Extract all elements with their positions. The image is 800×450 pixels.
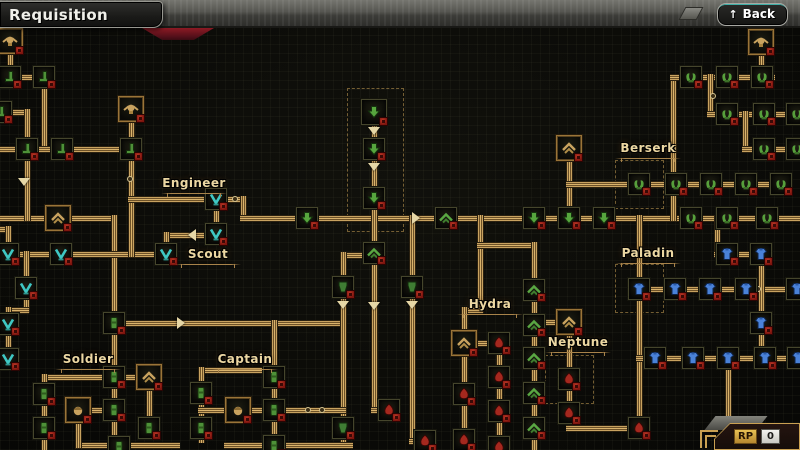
locked-badge <box>204 396 213 405</box>
path-arrow-icon <box>18 178 30 186</box>
locked-badge <box>537 221 546 230</box>
path-arrow-icon <box>368 127 380 135</box>
locked-badge <box>346 431 355 440</box>
path-segment <box>128 155 135 257</box>
locked-badge <box>749 187 758 196</box>
locked-badge <box>572 221 581 230</box>
skill-node-flame[interactable] <box>414 430 436 450</box>
skill-node-pack[interactable] <box>190 417 212 439</box>
skill-node-armorB[interactable] <box>699 278 721 300</box>
path-arrow-icon <box>406 301 418 309</box>
path-arrow-icon <box>412 212 420 224</box>
label-underline-decor <box>457 312 523 318</box>
locked-badge <box>730 221 739 230</box>
rp-value: 0 <box>761 429 780 444</box>
skill-node-armorB[interactable] <box>735 278 757 300</box>
skill-node-armorB[interactable] <box>682 347 704 369</box>
skill-node-down[interactable] <box>363 138 385 160</box>
skill-node-claws[interactable] <box>628 173 650 195</box>
skill-node-flame[interactable] <box>488 400 510 422</box>
locked-badge <box>47 431 56 440</box>
locked-badge <box>219 237 228 246</box>
locked-badge <box>696 361 705 370</box>
skill-node-wing[interactable] <box>523 347 545 369</box>
skill-node-wing[interactable] <box>363 242 385 264</box>
locked-badge <box>30 152 39 161</box>
locked-badge <box>415 290 424 299</box>
skill-node-armorB[interactable] <box>786 278 800 300</box>
locked-badge <box>47 397 56 406</box>
locked-badge <box>310 221 319 230</box>
locked-badge <box>678 292 687 301</box>
locked-badge <box>766 47 775 56</box>
skill-node-vee[interactable] <box>0 313 19 335</box>
path-segment <box>224 442 353 449</box>
locked-badge <box>607 221 616 230</box>
locked-badge <box>694 80 703 89</box>
skill-node-armorB[interactable] <box>717 347 739 369</box>
locked-badge <box>29 291 38 300</box>
skill-node-vee[interactable] <box>155 243 177 265</box>
red-banner-notch <box>142 28 214 40</box>
locked-badge <box>642 292 651 301</box>
locked-badge <box>377 256 386 265</box>
locked-badge <box>428 444 437 450</box>
locked-badge <box>377 152 386 161</box>
skill-node-eagle[interactable] <box>45 205 71 231</box>
locked-badge <box>392 413 401 422</box>
locked-badge <box>764 257 773 266</box>
locked-badge <box>346 290 355 299</box>
locked-badge <box>117 380 126 389</box>
back-button[interactable]: ↑Back <box>717 3 788 26</box>
skill-node-wing[interactable] <box>523 417 545 439</box>
path-segment <box>496 340 503 450</box>
skill-node-claws[interactable] <box>716 66 738 88</box>
locked-badge <box>13 80 22 89</box>
skill-node-armorG[interactable] <box>332 276 354 298</box>
locked-badge <box>64 257 73 266</box>
locked-badge <box>63 223 72 232</box>
locked-badge <box>219 202 228 211</box>
skill-node-flame[interactable] <box>453 383 475 405</box>
locked-badge <box>469 348 478 357</box>
skill-node-pack[interactable] <box>33 383 55 405</box>
locked-badge <box>502 346 511 355</box>
skill-node-down[interactable] <box>558 207 580 229</box>
path-arrow-icon <box>368 302 380 310</box>
skill-node-down[interactable] <box>296 207 318 229</box>
path-segment <box>111 320 346 327</box>
locked-badge <box>467 397 476 406</box>
skill-node-vee[interactable] <box>0 243 19 265</box>
locked-badge <box>204 431 213 440</box>
tree-label-captain: Captain <box>212 352 278 373</box>
label-underline-decor <box>615 261 681 267</box>
path-rivet <box>232 196 238 202</box>
skill-node-claws[interactable] <box>716 103 738 125</box>
skill-node-vee[interactable] <box>50 243 72 265</box>
locked-badge <box>15 46 24 55</box>
label-underline-decor <box>615 156 681 162</box>
locked-badge <box>730 80 739 89</box>
locked-badge <box>572 382 581 391</box>
locked-badge <box>11 327 20 336</box>
tree-label-hydra: Hydra <box>457 297 523 318</box>
armorB-icon <box>790 350 800 366</box>
locked-badge <box>47 80 56 89</box>
skill-node-flame[interactable] <box>558 368 580 390</box>
tree-label-text: Hydra <box>457 297 523 311</box>
locked-badge <box>764 326 773 335</box>
skill-node-eagle[interactable] <box>556 309 582 335</box>
locked-badge <box>83 415 92 424</box>
path-rivet <box>127 176 133 182</box>
skill-node-armorB[interactable] <box>750 243 772 265</box>
locked-badge <box>502 380 511 389</box>
back-button-label: Back <box>743 7 775 21</box>
locked-badge <box>574 153 583 162</box>
skill-node-wing[interactable] <box>435 207 457 229</box>
skill-node-down[interactable] <box>363 187 385 209</box>
skill-node-claws[interactable] <box>786 138 800 160</box>
tree-label-text: Engineer <box>161 176 227 190</box>
skill-node-vee[interactable] <box>0 348 19 370</box>
tree-label-text: Soldier <box>55 352 121 366</box>
skill-node-claws[interactable] <box>700 173 722 195</box>
skill-node-pack[interactable] <box>103 312 125 334</box>
locked-badge <box>714 187 723 196</box>
locked-badge <box>749 292 758 301</box>
skill-node-pack[interactable] <box>138 417 160 439</box>
skill-node-eagle[interactable] <box>556 135 582 161</box>
path-rivet <box>319 407 325 413</box>
skill-node-wing[interactable] <box>523 382 545 404</box>
path-arrow-icon <box>177 317 185 329</box>
skill-node-pack[interactable] <box>103 399 125 421</box>
tree-label-text: Scout <box>175 247 241 261</box>
skill-node-down[interactable] <box>361 99 387 125</box>
skill-node-eagle[interactable] <box>451 330 477 356</box>
skill-node-flame[interactable] <box>453 429 475 450</box>
skill-node-flame[interactable] <box>488 436 510 450</box>
skill-node-flame[interactable] <box>488 366 510 388</box>
tree-label-text: Captain <box>212 352 278 366</box>
skill-node-armorB[interactable] <box>716 243 738 265</box>
path-segment <box>477 242 537 249</box>
skill-node-flame[interactable] <box>378 399 400 421</box>
skill-node-skull[interactable] <box>118 96 144 122</box>
locked-badge <box>117 413 126 422</box>
locked-badge <box>679 187 688 196</box>
skill-node-hook[interactable] <box>0 101 12 123</box>
tree-label-text: Berserk <box>615 141 681 155</box>
skill-node-hook[interactable] <box>51 138 73 160</box>
skill-node-flame[interactable] <box>488 332 510 354</box>
path-segment <box>409 215 416 444</box>
locked-badge <box>767 117 776 126</box>
tree-label-scout: Scout <box>175 247 241 268</box>
locked-badge <box>658 361 667 370</box>
locked-badge <box>117 326 126 335</box>
locked-badge <box>767 152 776 161</box>
skill-node-pack[interactable] <box>190 382 212 404</box>
locked-badge <box>730 257 739 266</box>
skill-node-claws[interactable] <box>786 103 800 125</box>
skill-node-hook[interactable] <box>16 138 38 160</box>
locked-badge <box>537 396 546 405</box>
skill-node-pack[interactable] <box>33 417 55 439</box>
locked-badge <box>277 380 286 389</box>
locked-badge <box>243 415 252 424</box>
skill-node-head[interactable] <box>225 397 251 423</box>
skill-node-armorB[interactable] <box>787 347 800 369</box>
locked-badge <box>537 293 546 302</box>
locked-badge <box>152 431 161 440</box>
armorB-icon <box>789 281 800 297</box>
locked-badge <box>502 414 511 423</box>
skill-node-flame[interactable] <box>628 417 650 439</box>
locked-badge <box>11 362 20 371</box>
locked-badge <box>770 221 779 230</box>
path-segment <box>41 84 48 152</box>
locked-badge <box>377 201 386 210</box>
locked-badge <box>642 431 651 440</box>
path-arrow-icon <box>188 229 196 241</box>
skill-node-armorG[interactable] <box>332 417 354 439</box>
skill-node-wing[interactable] <box>523 279 545 301</box>
skill-node-claws[interactable] <box>680 66 702 88</box>
label-underline-decor <box>161 191 227 197</box>
tree-label-text: Paladin <box>615 246 681 260</box>
skill-node-armorB[interactable] <box>754 347 776 369</box>
tree-label-neptune: Neptune <box>545 335 611 356</box>
tree-label-paladin: Paladin <box>615 246 681 267</box>
flame-icon <box>491 439 507 450</box>
skill-node-vee[interactable] <box>15 277 37 299</box>
locked-badge <box>765 80 774 89</box>
locked-badge <box>537 431 546 440</box>
tree-label-engineer: Engineer <box>161 176 227 197</box>
label-underline-decor <box>212 367 278 373</box>
pack-icon <box>111 439 127 450</box>
skill-node-eagle[interactable] <box>136 364 162 390</box>
page-title-text: Requisition <box>9 6 108 24</box>
label-underline-decor <box>175 262 241 268</box>
skill-node-claws[interactable] <box>753 138 775 160</box>
path-rivet <box>305 407 311 413</box>
tree-label-text: Neptune <box>545 335 611 349</box>
skill-node-down[interactable] <box>593 207 615 229</box>
locked-badge <box>713 292 722 301</box>
locked-badge <box>467 443 476 450</box>
requisition-points-panel: RP 0 <box>714 423 800 450</box>
locked-badge <box>731 361 740 370</box>
skill-node-skull[interactable] <box>748 29 774 55</box>
skill-node-claws[interactable] <box>665 173 687 195</box>
page-title: Requisition <box>0 1 163 28</box>
locked-badge <box>379 117 388 126</box>
skill-node-armorB[interactable] <box>644 347 666 369</box>
label-underline-decor <box>545 350 611 356</box>
locked-badge <box>784 187 793 196</box>
skill-node-pack[interactable] <box>263 435 285 450</box>
locked-badge <box>449 221 458 230</box>
skill-node-claws[interactable] <box>770 173 792 195</box>
path-arrow-icon <box>368 163 380 171</box>
skill-node-flame[interactable] <box>558 402 580 424</box>
locked-badge <box>537 361 546 370</box>
locked-badge <box>11 257 20 266</box>
skill-node-armorB[interactable] <box>750 312 772 334</box>
rp-label: RP <box>734 429 757 444</box>
locked-badge <box>730 117 739 126</box>
skill-node-skull[interactable] <box>0 28 23 54</box>
locked-badge <box>277 413 286 422</box>
locked-badge <box>134 152 143 161</box>
locked-badge <box>4 115 13 124</box>
claws-icon <box>789 141 800 157</box>
skill-node-head[interactable] <box>65 397 91 423</box>
path-arrow-icon <box>337 301 349 309</box>
skill-node-pack[interactable] <box>108 436 130 450</box>
locked-badge <box>65 152 74 161</box>
skill-node-pack[interactable] <box>263 399 285 421</box>
skill-node-claws[interactable] <box>756 207 778 229</box>
skill-node-armorB[interactable] <box>664 278 686 300</box>
locked-badge <box>642 187 651 196</box>
locked-badge <box>572 416 581 425</box>
tree-label-soldier: Soldier <box>55 352 121 373</box>
skill-node-down[interactable] <box>523 207 545 229</box>
locked-badge <box>154 382 163 391</box>
skill-node-wing[interactable] <box>523 314 545 336</box>
skill-node-hook[interactable] <box>33 66 55 88</box>
locked-badge <box>768 361 777 370</box>
skill-node-hook[interactable] <box>120 138 142 160</box>
skill-node-claws[interactable] <box>753 103 775 125</box>
label-underline-decor <box>55 367 121 373</box>
up-arrow-icon: ↑ <box>728 8 737 21</box>
path-rivet <box>710 93 716 99</box>
requisition-screen: EngineerScoutBerserkPaladinHydraNeptuneS… <box>0 0 800 450</box>
claws-icon <box>789 106 800 122</box>
skill-node-claws[interactable] <box>680 207 702 229</box>
skill-node-claws[interactable] <box>735 173 757 195</box>
skill-node-hook[interactable] <box>0 66 21 88</box>
locked-badge <box>136 114 145 123</box>
skill-node-claws[interactable] <box>716 207 738 229</box>
tree-label-berserk: Berserk <box>615 141 681 162</box>
skill-node-armorG[interactable] <box>401 276 423 298</box>
skill-node-vee[interactable] <box>205 223 227 245</box>
skill-node-claws[interactable] <box>751 66 773 88</box>
skill-node-armorB[interactable] <box>628 278 650 300</box>
locked-badge <box>694 221 703 230</box>
path-segment <box>24 109 31 221</box>
